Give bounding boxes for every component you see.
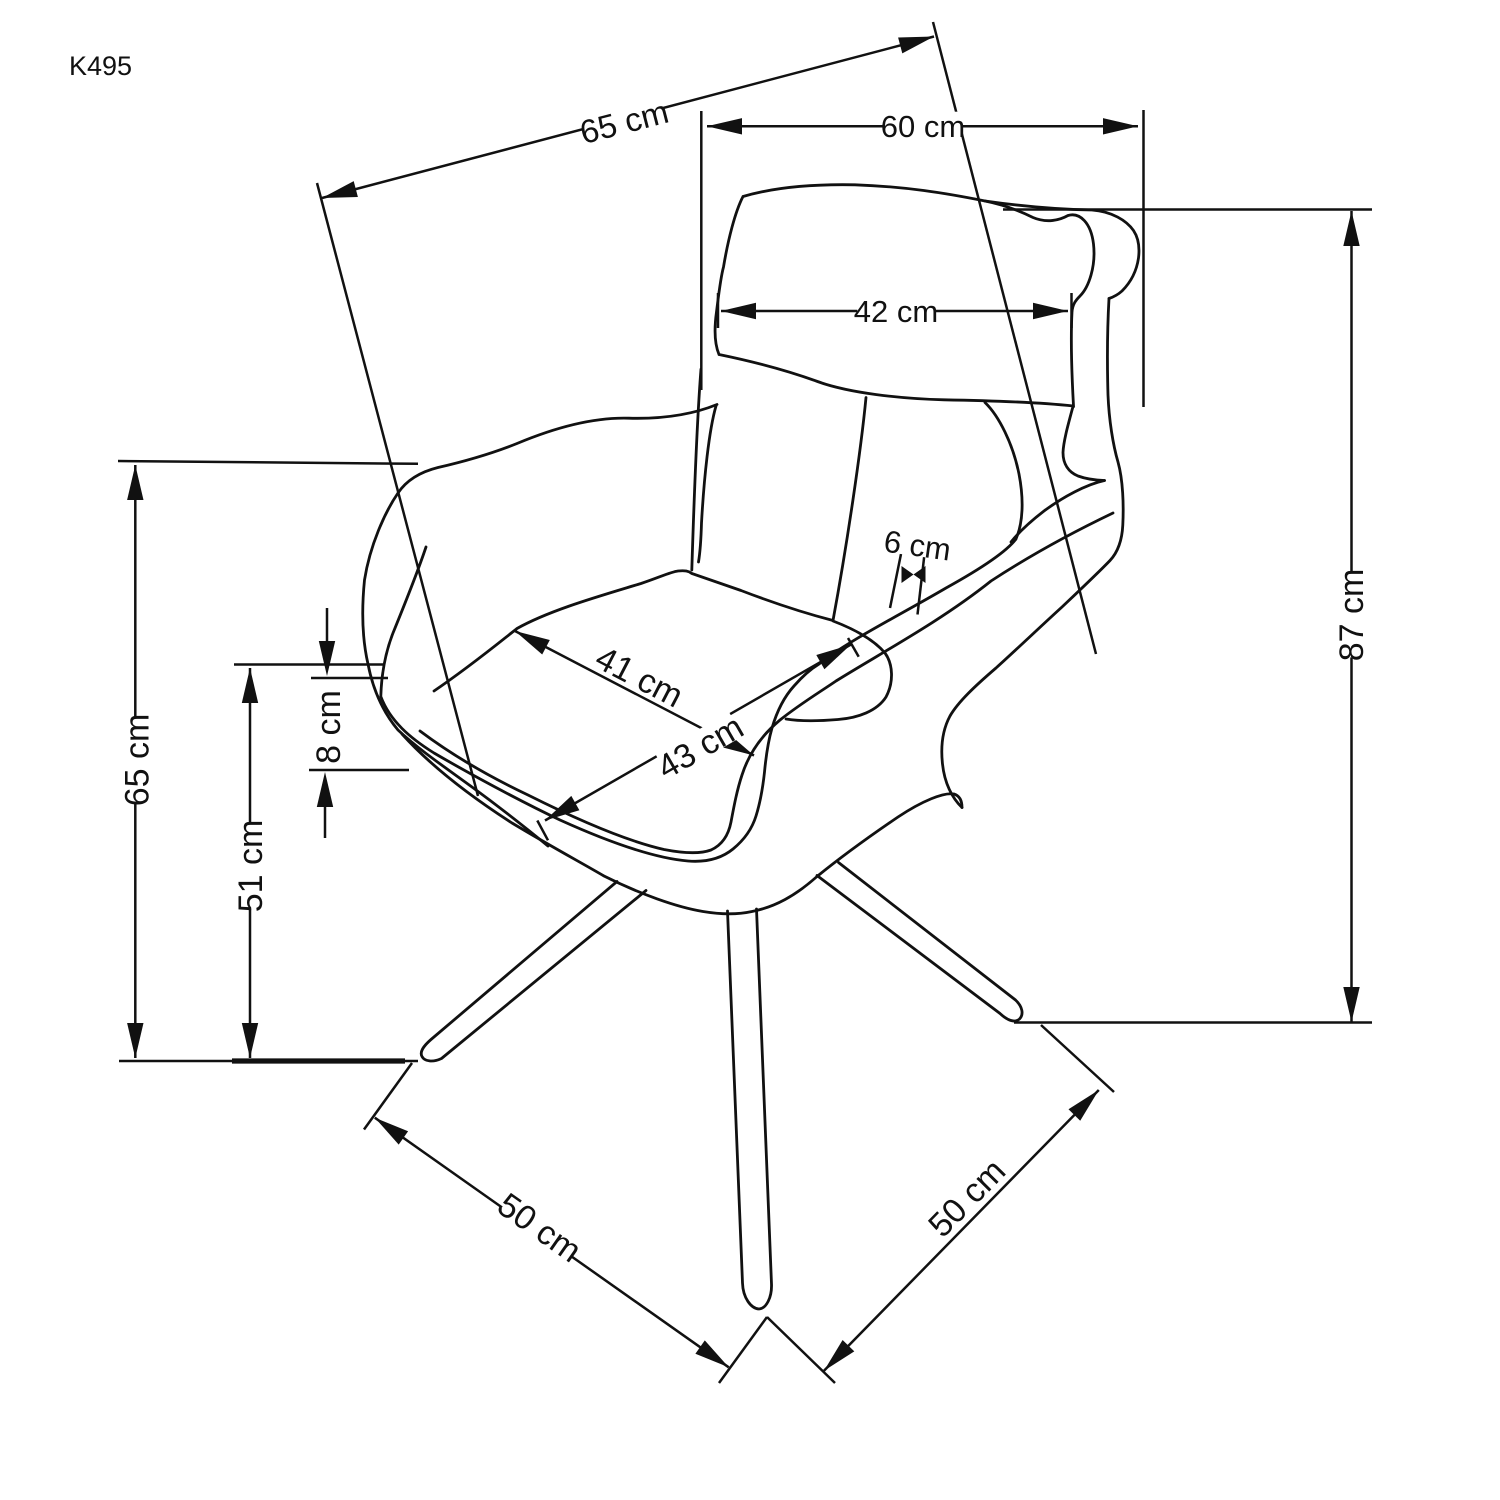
svg-text:87 cm: 87 cm	[1333, 569, 1371, 662]
svg-text:60 cm: 60 cm	[881, 109, 965, 144]
svg-text:42 cm: 42 cm	[854, 294, 938, 329]
svg-text:8 cm: 8 cm	[310, 690, 348, 764]
svg-text:K495: K495	[69, 51, 132, 81]
svg-text:51 cm: 51 cm	[232, 820, 270, 913]
svg-text:65 cm: 65 cm	[119, 714, 157, 807]
